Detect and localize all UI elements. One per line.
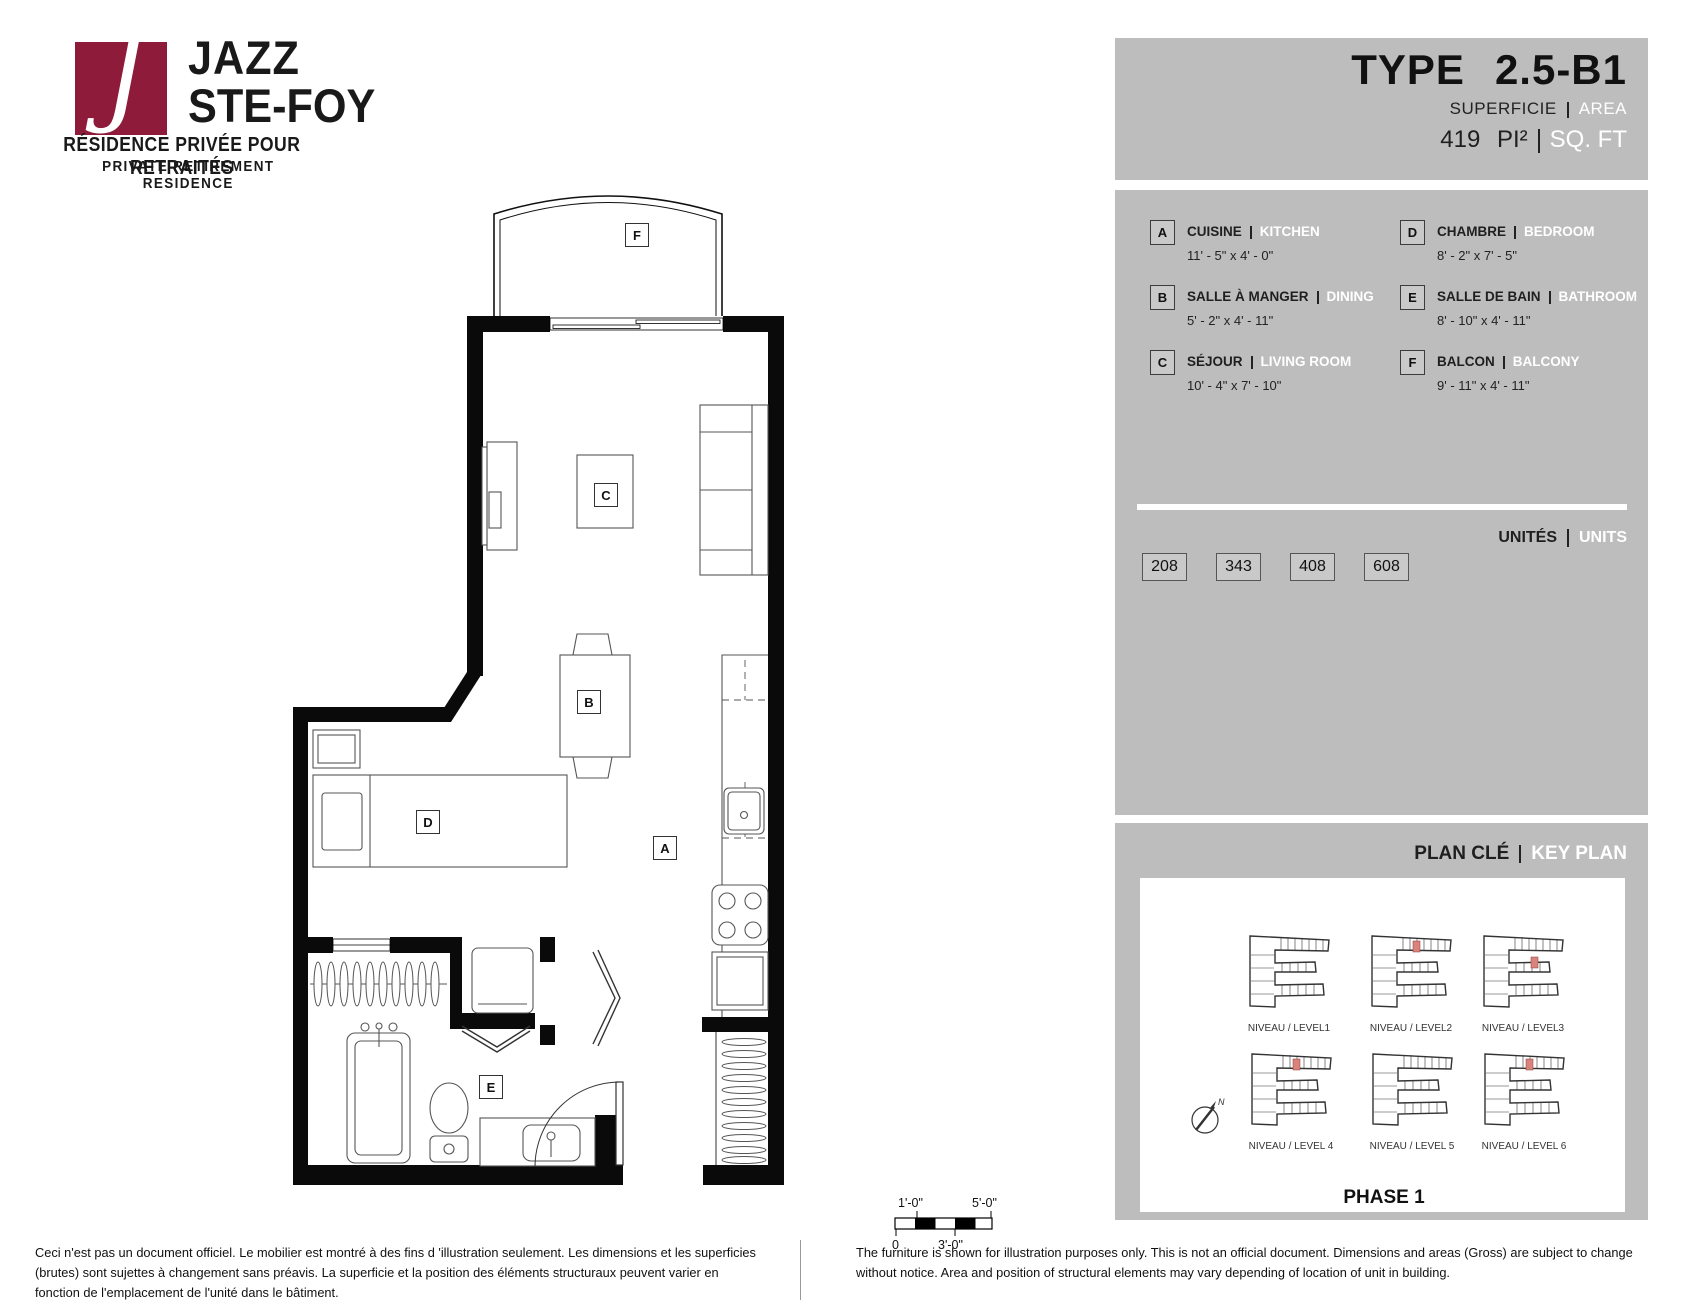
- unit-number-badge: 408: [1290, 553, 1335, 581]
- plan-label-living: C: [594, 483, 618, 507]
- logo-monogram-icon: J: [81, 16, 167, 136]
- svg-text:N: N: [1218, 1097, 1225, 1107]
- level-label: NIVEAU / LEVEL2: [1370, 1023, 1453, 1034]
- room-name-fr: CUISINE: [1187, 224, 1242, 239]
- brand-name: JAZZ STE-FOY: [188, 34, 375, 130]
- level-label: NIVEAU / LEVEL3: [1482, 1023, 1565, 1034]
- plan-label-dining: B: [577, 690, 601, 714]
- level-label: NIVEAU / LEVEL 6: [1482, 1141, 1567, 1152]
- legend-row-bathroom: E SALLE DE BAINBATHROOM 8' - 10" x 4' - …: [1400, 285, 1637, 328]
- plan-label-balcony: F: [625, 223, 649, 247]
- highlighted-unit-marker: [1531, 957, 1538, 968]
- room-dimensions: 11' - 5" x 4' - 0": [1187, 248, 1320, 263]
- brand-name-line1: JAZZ: [188, 34, 375, 82]
- units-label-fr: UNITÉS: [1498, 529, 1557, 546]
- vanity-sink: [480, 1118, 595, 1166]
- disclaimer-divider: [800, 1240, 801, 1300]
- room-letter-badge: D: [1400, 220, 1425, 245]
- room-dimensions: 10' - 4" x 7' - 10": [1187, 378, 1351, 393]
- scale-label-5ft: 5'-0": [972, 1196, 997, 1210]
- room-dimensions: 8' - 10" x 4' - 11": [1437, 313, 1637, 328]
- level-label: NIVEAU / LEVEL 5: [1370, 1141, 1455, 1152]
- toilet: [430, 1083, 468, 1162]
- area-value: 419: [1440, 126, 1480, 153]
- floor-plan-sheet: { "brand": { "monogram": "J", "name_line…: [0, 0, 1690, 1306]
- room-name-en: BATHROOM: [1559, 289, 1638, 304]
- logo-square: J: [75, 42, 167, 135]
- units-divider-line: [1137, 504, 1627, 510]
- type-label: TYPE: [1351, 46, 1465, 93]
- room-letter-badge: F: [1400, 350, 1425, 375]
- bathtub: [347, 1023, 410, 1163]
- key-plan-white-box: [1140, 878, 1625, 1212]
- entry-closet-bifold-door: [593, 950, 620, 1046]
- phase-label: PHASE 1: [1343, 1187, 1425, 1208]
- room-name-en: DINING: [1327, 289, 1374, 304]
- room-letter-badge: C: [1150, 350, 1175, 375]
- room-dimensions: 9' - 11" x 4' - 11": [1437, 378, 1580, 393]
- highlighted-unit-marker: [1293, 1059, 1300, 1070]
- level-label: NIVEAU / LEVEL1: [1248, 1023, 1331, 1034]
- bathroom-bifold-door: [462, 1026, 530, 1052]
- balcony-walls: [494, 196, 722, 316]
- room-name-en: KITCHEN: [1260, 224, 1320, 239]
- room-name-fr: SALLE DE BAIN: [1437, 289, 1541, 304]
- room-dimensions: 5' - 2" x 4' - 11": [1187, 313, 1374, 328]
- legend-row-dining: B SALLE À MANGERDINING 5' - 2" x 4' - 11…: [1150, 285, 1374, 328]
- room-name-fr: BALCON: [1437, 354, 1495, 369]
- room-name-fr: SÉJOUR: [1187, 354, 1243, 369]
- scale-label-1ft: 1'-0": [898, 1196, 923, 1210]
- superficie-label: SUPERFICIE: [1450, 99, 1557, 118]
- highlighted-unit-marker: [1413, 941, 1420, 952]
- room-name-fr: SALLE À MANGER: [1187, 289, 1309, 304]
- stove: [712, 885, 768, 945]
- legend-row-balcony: F BALCONBALCONY 9' - 11" x 4' - 11": [1400, 350, 1580, 393]
- plan-label-bathroom: E: [479, 1075, 503, 1099]
- nightstand: [313, 730, 360, 768]
- plan-label-bedroom: D: [416, 810, 440, 834]
- disclaimer-fr: Ceci n'est pas un document officiel. Le …: [35, 1243, 763, 1302]
- legend-row-kitchen: A CUISINEKITCHEN 11' - 5" x 4' - 0": [1150, 220, 1320, 263]
- tv-cabinet: [482, 442, 517, 550]
- washer: [472, 948, 533, 1013]
- unit-number-badge: 208: [1142, 553, 1187, 581]
- room-name-en: BEDROOM: [1524, 224, 1595, 239]
- unit-number-list: 208 343 408 608: [1142, 553, 1409, 581]
- balcony-door-window: [550, 318, 723, 330]
- kitchen-sink: [724, 788, 764, 834]
- unit-type-title: TYPE2.5-B1: [1351, 46, 1627, 94]
- highlighted-unit-marker: [1526, 1059, 1533, 1070]
- area-label-row: SUPERFICIEAREA: [1450, 99, 1627, 119]
- closet-hangers: [310, 962, 447, 1006]
- room-letter-badge: A: [1150, 220, 1175, 245]
- room-name-fr: CHAMBRE: [1437, 224, 1506, 239]
- room-letter-badge: B: [1150, 285, 1175, 310]
- room-dimensions: 8' - 2" x 7' - 5": [1437, 248, 1595, 263]
- closet-window: [333, 939, 390, 951]
- level-label: NIVEAU / LEVEL 4: [1249, 1141, 1334, 1152]
- legend-row-living: C SÉJOURLIVING ROOM 10' - 4" x 7' - 10": [1150, 350, 1351, 393]
- unit-number-badge: 343: [1216, 553, 1261, 581]
- room-name-en: LIVING ROOM: [1261, 354, 1352, 369]
- plan-label-kitchen: A: [653, 836, 677, 860]
- area-label: AREA: [1579, 99, 1627, 118]
- floor-plan-drawing: [260, 170, 790, 1200]
- units-label-en: UNITS: [1579, 529, 1627, 546]
- key-plan-drawing: NIVEAU / LEVEL1 NIVEAU / LEVEL2 NIVEAU /…: [1115, 823, 1648, 1220]
- unit-number-badge: 608: [1364, 553, 1409, 581]
- fridge: [712, 952, 768, 1010]
- area-value-row: 419 PI²SQ. FT: [1440, 126, 1627, 154]
- legend-row-bedroom: D CHAMBREBEDROOM 8' - 2" x 7' - 5": [1400, 220, 1595, 263]
- bed: [313, 775, 567, 867]
- sofa: [700, 405, 768, 575]
- disclaimer-en: The furniture is shown for illustration …: [856, 1243, 1666, 1283]
- area-unit-fr: PI²: [1497, 126, 1528, 153]
- shelf-closet: [716, 1032, 766, 1165]
- room-letter-badge: E: [1400, 285, 1425, 310]
- brand-name-line2: STE-FOY: [188, 82, 375, 130]
- legend-panel: [1115, 190, 1648, 815]
- room-name-en: BALCONY: [1513, 354, 1580, 369]
- units-heading: UNITÉSUNITS: [1498, 529, 1627, 547]
- area-unit-en: SQ. FT: [1550, 126, 1627, 153]
- type-value: 2.5-B1: [1495, 46, 1627, 93]
